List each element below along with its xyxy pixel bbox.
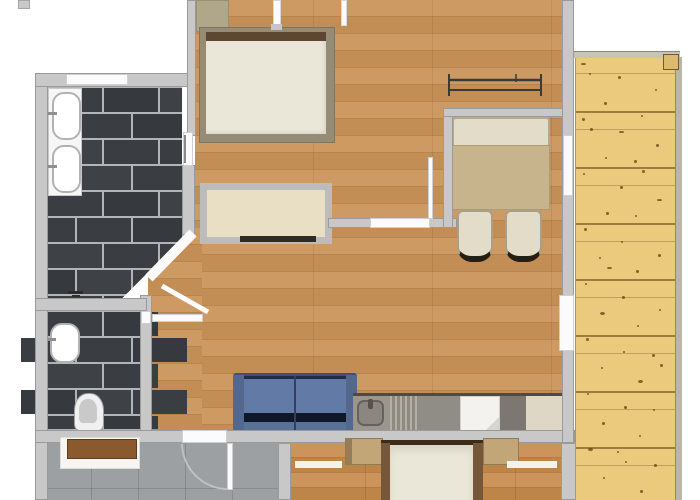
deck-knot	[625, 461, 627, 463]
wall-tile	[133, 218, 187, 242]
deck-knot	[660, 364, 663, 367]
dining-table	[452, 145, 550, 210]
wall-tile	[48, 364, 102, 388]
deck-knot	[590, 128, 593, 131]
deck-knot	[642, 170, 645, 173]
kitchen-counter	[353, 393, 563, 432]
deck-knot	[659, 309, 661, 311]
floor-drain-icon	[72, 295, 80, 297]
sofa-seat-cushion	[296, 376, 346, 413]
deck-knot	[638, 380, 643, 383]
deck-knot	[657, 199, 662, 201]
deck-knot	[600, 312, 605, 315]
floor-drain-icon	[68, 291, 83, 294]
wall-partition-cap	[271, 24, 282, 30]
deck-knot	[584, 228, 587, 231]
wall-tile	[48, 244, 102, 268]
deck-knot	[606, 212, 609, 215]
wall-tile	[77, 338, 131, 362]
sink-faucet-icon	[368, 399, 373, 409]
counter-segment	[418, 396, 460, 432]
deck-knot	[587, 393, 589, 395]
wall-tile	[104, 192, 158, 216]
sofa-seat-cushion	[244, 376, 295, 413]
bedroom-door-leaf	[428, 157, 433, 219]
wc-door-opening	[141, 311, 151, 324]
deck-knot	[640, 490, 643, 493]
deck-knot	[607, 267, 612, 269]
deck-knot	[604, 102, 607, 105]
deck-knot	[639, 435, 641, 437]
rug	[295, 461, 342, 468]
wall-stub	[18, 0, 30, 9]
deck-knot	[653, 409, 655, 411]
rug	[507, 461, 557, 468]
deck-knot	[658, 254, 661, 257]
terrace-deck	[575, 57, 676, 500]
deck-knot	[623, 351, 625, 353]
deck-knot	[620, 186, 623, 189]
entry-door-leaf	[227, 443, 233, 490]
deck-knot	[589, 73, 591, 75]
deck-knot	[634, 160, 637, 163]
toilet	[74, 393, 104, 431]
dining-chair	[505, 210, 542, 262]
bed2-frame-rail	[473, 443, 483, 500]
deck-knot	[599, 257, 601, 259]
deck-knot	[656, 144, 659, 147]
deck-knot	[583, 173, 585, 175]
bed-headboard	[206, 32, 326, 41]
deck-knot	[654, 464, 657, 467]
counter-segment	[500, 396, 526, 432]
deck-knot	[588, 448, 593, 451]
sofa-divider	[294, 376, 296, 432]
bed-mattress	[206, 41, 326, 134]
deck-knot	[619, 131, 624, 133]
deck-knot	[586, 338, 589, 341]
wc-floor	[48, 311, 140, 430]
deck-knot	[636, 270, 639, 273]
wall-partition-stub	[341, 0, 347, 26]
sink-drainer	[390, 396, 418, 432]
wall-bedroom2-right	[561, 443, 576, 500]
dining-chair	[457, 210, 493, 262]
wall-entry-bedroom2	[278, 443, 291, 500]
deck-knot	[617, 451, 619, 453]
kitchen-appliance	[460, 396, 500, 432]
nightstand	[345, 438, 383, 465]
wall-tile	[104, 88, 158, 112]
wall-tile	[21, 270, 75, 294]
wardrobe	[200, 183, 332, 244]
deck-corner-post	[663, 54, 679, 70]
wall-tile	[133, 166, 187, 190]
deck-knot	[601, 367, 603, 369]
bed2-mattress	[390, 445, 473, 500]
bathroom-window	[66, 74, 128, 85]
wall-dining-nook	[443, 108, 453, 228]
vanity-basin	[52, 92, 81, 140]
deck-knot	[581, 63, 586, 65]
wc-door-leaf	[152, 314, 203, 322]
double-bed	[199, 27, 335, 143]
wall-right-exterior	[562, 0, 574, 443]
wall-tile	[21, 218, 75, 242]
kitchen-sink-unit	[353, 396, 390, 432]
entry-bench	[67, 439, 137, 459]
deck-knot	[635, 215, 637, 217]
deck-knot	[582, 118, 585, 121]
door-handle-icon	[184, 135, 186, 163]
wall-tile	[77, 218, 131, 242]
wall-dining-nook-top	[443, 108, 573, 117]
deck-knot	[585, 283, 587, 285]
toilet-seat	[79, 399, 97, 423]
wall-tile	[77, 166, 131, 190]
deck-right-rim	[675, 57, 682, 500]
wash-basin	[50, 323, 80, 363]
wall-bedroom-left	[187, 0, 196, 136]
deck-knot	[602, 422, 605, 425]
sofa-armrest	[233, 375, 244, 431]
window-right-2	[559, 295, 574, 351]
deck-knot	[624, 406, 627, 409]
floor-plan	[0, 0, 700, 500]
bedroom-door-opening	[370, 218, 430, 228]
wall-tile	[104, 140, 158, 164]
deck-knot	[652, 354, 655, 357]
sofa	[233, 373, 357, 432]
clothes-rail	[240, 236, 316, 242]
faucet-icon	[48, 165, 57, 168]
faucet-icon	[48, 338, 56, 341]
deck-knot	[603, 477, 605, 479]
deck-knot	[621, 241, 623, 243]
wall-bathroom-right	[182, 165, 195, 235]
deck-knot	[618, 76, 621, 79]
wall-tile	[77, 114, 131, 138]
wall-wc-top	[35, 298, 147, 311]
dining-bench	[452, 117, 550, 148]
bed2-frame-rail	[381, 443, 390, 500]
wall-tile	[133, 114, 187, 138]
faucet-icon	[48, 112, 57, 115]
wall-tile	[77, 270, 131, 294]
deck-knot	[641, 115, 643, 117]
entry-door-opening	[182, 430, 227, 443]
deck-knot	[622, 296, 625, 299]
window-right-1	[563, 135, 573, 196]
appliance-corner-fold	[485, 417, 499, 431]
wall-tile	[21, 390, 75, 414]
counter-segment	[526, 396, 563, 432]
vanity-basin	[52, 145, 81, 193]
deck-knot	[655, 89, 657, 91]
wall-tile	[104, 244, 158, 268]
deck-knot	[605, 157, 607, 159]
deck-knot	[637, 325, 639, 327]
